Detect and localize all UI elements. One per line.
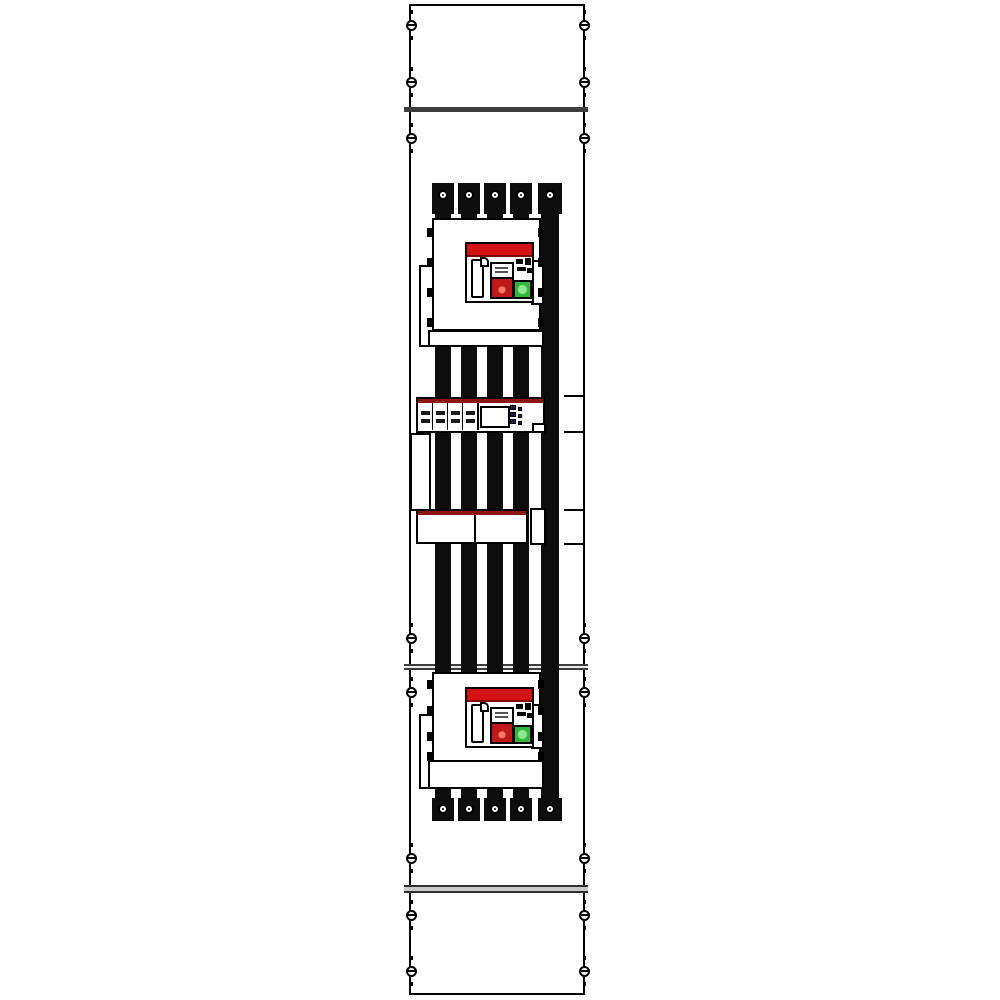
module-terminal-bar	[421, 419, 430, 423]
indicator-dot	[510, 419, 516, 424]
plate-clip	[427, 258, 433, 267]
breaker-on-button	[513, 280, 532, 299]
terminal-screw-icon	[438, 804, 448, 814]
cover-red-line	[418, 511, 526, 515]
plate-clip	[538, 258, 544, 267]
plate-clip	[538, 288, 544, 297]
breaker-on-button	[513, 725, 532, 744]
screw-slot	[581, 857, 588, 859]
frame-tick	[564, 543, 585, 545]
plate-clip	[427, 318, 433, 327]
screw-mark	[410, 149, 413, 153]
screw-mark	[583, 703, 586, 707]
rating-label-glyphs	[516, 703, 532, 721]
screw-slot	[581, 691, 588, 693]
label-line	[495, 271, 508, 273]
terminal-screw-icon	[516, 190, 526, 200]
panel-screw-icon	[406, 633, 417, 644]
plate-clip	[427, 680, 433, 689]
plate-clip	[538, 752, 544, 761]
glyph	[516, 259, 523, 264]
screw-slot	[581, 24, 588, 26]
indicator-dot	[510, 412, 516, 417]
screw-slot	[581, 81, 588, 83]
screw-mark	[410, 843, 413, 847]
glyph	[525, 258, 531, 265]
rating-label-glyphs	[516, 258, 532, 276]
screw-mark	[410, 10, 413, 14]
screw-mark	[410, 926, 413, 930]
plate-clip	[427, 706, 433, 715]
terminal-screw-icon	[545, 190, 555, 200]
breaker-red-cap	[467, 244, 532, 257]
terminal-cover-end	[530, 508, 546, 545]
screw-mark	[583, 123, 586, 127]
meter-strip-notch	[532, 423, 546, 433]
label-line	[495, 267, 508, 269]
panel-screw-icon	[579, 910, 590, 921]
panel-screw-icon	[579, 20, 590, 31]
module-terminal-bar	[451, 411, 460, 415]
screw-slot	[408, 81, 415, 83]
screw-mark	[410, 623, 413, 627]
plate-clip	[538, 732, 544, 741]
screw-mark	[410, 900, 413, 904]
screw-mark	[410, 67, 413, 71]
meter-module-cell	[433, 403, 449, 430]
module-terminal-bar	[466, 419, 475, 423]
screw-mark	[410, 36, 413, 40]
breaker-handle-cap	[480, 702, 489, 712]
glyph	[517, 712, 526, 716]
frame-tick	[564, 431, 585, 433]
trip-red-button	[492, 277, 512, 297]
meter-module-cell	[463, 403, 479, 430]
terminal-screw-icon	[516, 804, 526, 814]
terminal-screw-dot	[494, 194, 496, 196]
screw-mark	[410, 123, 413, 127]
plate-clip	[427, 228, 433, 237]
terminal-screw-dot	[442, 194, 444, 196]
terminal-screw-dot	[549, 194, 551, 196]
screw-slot	[408, 914, 415, 916]
breaker-trip-indicator	[490, 707, 514, 744]
screw-mark	[410, 956, 413, 960]
screw-mark	[410, 677, 413, 681]
label-line	[495, 716, 508, 718]
circuit-breaker-upper	[465, 242, 534, 303]
glyph	[525, 703, 531, 710]
screw-mark	[583, 67, 586, 71]
panel-screw-icon	[406, 966, 417, 977]
screw-mark	[410, 703, 413, 707]
screw-slot	[581, 637, 588, 639]
side-panel-block	[410, 433, 431, 511]
screw-slot	[581, 970, 588, 972]
terminal-screw-icon	[438, 190, 448, 200]
terminal-screw-dot	[549, 808, 551, 810]
indicator-dot	[518, 421, 522, 425]
upper-plate-bottom-rail	[428, 330, 544, 347]
meter-module-cell	[418, 403, 434, 430]
plate-clip	[427, 752, 433, 761]
panel-screw-icon	[579, 633, 590, 644]
glyph	[517, 267, 526, 271]
screw-mark	[583, 843, 586, 847]
panel-screw-icon	[406, 853, 417, 864]
frame-tick	[564, 395, 585, 397]
breaker-handle-cap	[480, 257, 489, 267]
panel-screw-icon	[579, 853, 590, 864]
indicator-dot	[518, 414, 522, 418]
module-terminal-bar	[436, 419, 445, 423]
panel-screw-icon	[406, 20, 417, 31]
panel-screw-icon	[406, 910, 417, 921]
terminal-screw-icon	[490, 190, 500, 200]
circuit-breaker-lower	[465, 687, 534, 748]
module-terminal-bar	[466, 411, 475, 415]
glyph	[527, 713, 532, 718]
screw-mark	[583, 926, 586, 930]
terminal-screw-dot	[494, 808, 496, 810]
frame-tick	[564, 509, 585, 511]
screw-slot	[408, 970, 415, 972]
panel-screw-icon	[406, 133, 417, 144]
screw-mark	[583, 900, 586, 904]
screw-slot	[408, 691, 415, 693]
meter-display	[480, 406, 510, 428]
panel-screw-icon	[579, 77, 590, 88]
terminal-screw-icon	[545, 804, 555, 814]
screw-mark	[583, 93, 586, 97]
terminal-screw-dot	[442, 808, 444, 810]
panel-screw-icon	[579, 133, 590, 144]
terminal-screw-dot	[468, 808, 470, 810]
screw-slot	[408, 637, 415, 639]
plate-clip	[538, 680, 544, 689]
screw-slot	[408, 137, 415, 139]
lower-plate-bottom-rail	[428, 760, 544, 789]
screw-mark	[410, 93, 413, 97]
screw-mark	[583, 982, 586, 986]
module-terminal-bar	[436, 411, 445, 415]
meter-module-strip	[416, 397, 545, 433]
plate-clip	[427, 732, 433, 741]
screw-mark	[583, 36, 586, 40]
label-line	[495, 712, 508, 714]
panel-screw-icon	[406, 687, 417, 698]
plate-clip	[427, 288, 433, 297]
glyph	[527, 268, 532, 273]
section-divider-bottom	[404, 885, 588, 893]
breaker-trip-indicator	[490, 262, 514, 299]
trip-red-button	[492, 722, 512, 742]
screw-mark	[583, 10, 586, 14]
screw-mark	[410, 982, 413, 986]
plate-clip	[538, 706, 544, 715]
terminal-screw-dot	[468, 194, 470, 196]
module-terminal-bar	[421, 411, 430, 415]
panel-screw-icon	[579, 966, 590, 977]
terminal-screw-dot	[520, 194, 522, 196]
screw-mark	[410, 869, 413, 873]
terminal-cover	[416, 509, 528, 544]
screw-mark	[583, 956, 586, 960]
switchgear-panel-drawing	[0, 0, 1000, 1000]
terminal-screw-icon	[464, 804, 474, 814]
section-divider-top	[404, 107, 588, 112]
panel-screw-icon	[406, 77, 417, 88]
indicator-dot	[518, 407, 522, 411]
cover-divider	[474, 515, 476, 542]
screw-slot	[581, 137, 588, 139]
plate-clip	[538, 318, 544, 327]
module-terminal-bar	[451, 419, 460, 423]
screw-mark	[583, 869, 586, 873]
panel-screw-icon	[579, 687, 590, 698]
screw-mark	[583, 149, 586, 153]
screw-slot	[408, 24, 415, 26]
screw-mark	[410, 649, 413, 653]
screw-mark	[583, 623, 586, 627]
screw-slot	[581, 914, 588, 916]
terminal-screw-dot	[520, 808, 522, 810]
screw-slot	[408, 857, 415, 859]
breaker-red-cap	[467, 689, 532, 702]
meter-module-cell	[448, 403, 464, 430]
plate-clip	[538, 228, 544, 237]
glyph	[516, 704, 523, 709]
screw-mark	[583, 677, 586, 681]
screw-mark	[583, 649, 586, 653]
indicator-dot	[510, 405, 516, 410]
terminal-screw-icon	[464, 190, 474, 200]
terminal-screw-icon	[490, 804, 500, 814]
